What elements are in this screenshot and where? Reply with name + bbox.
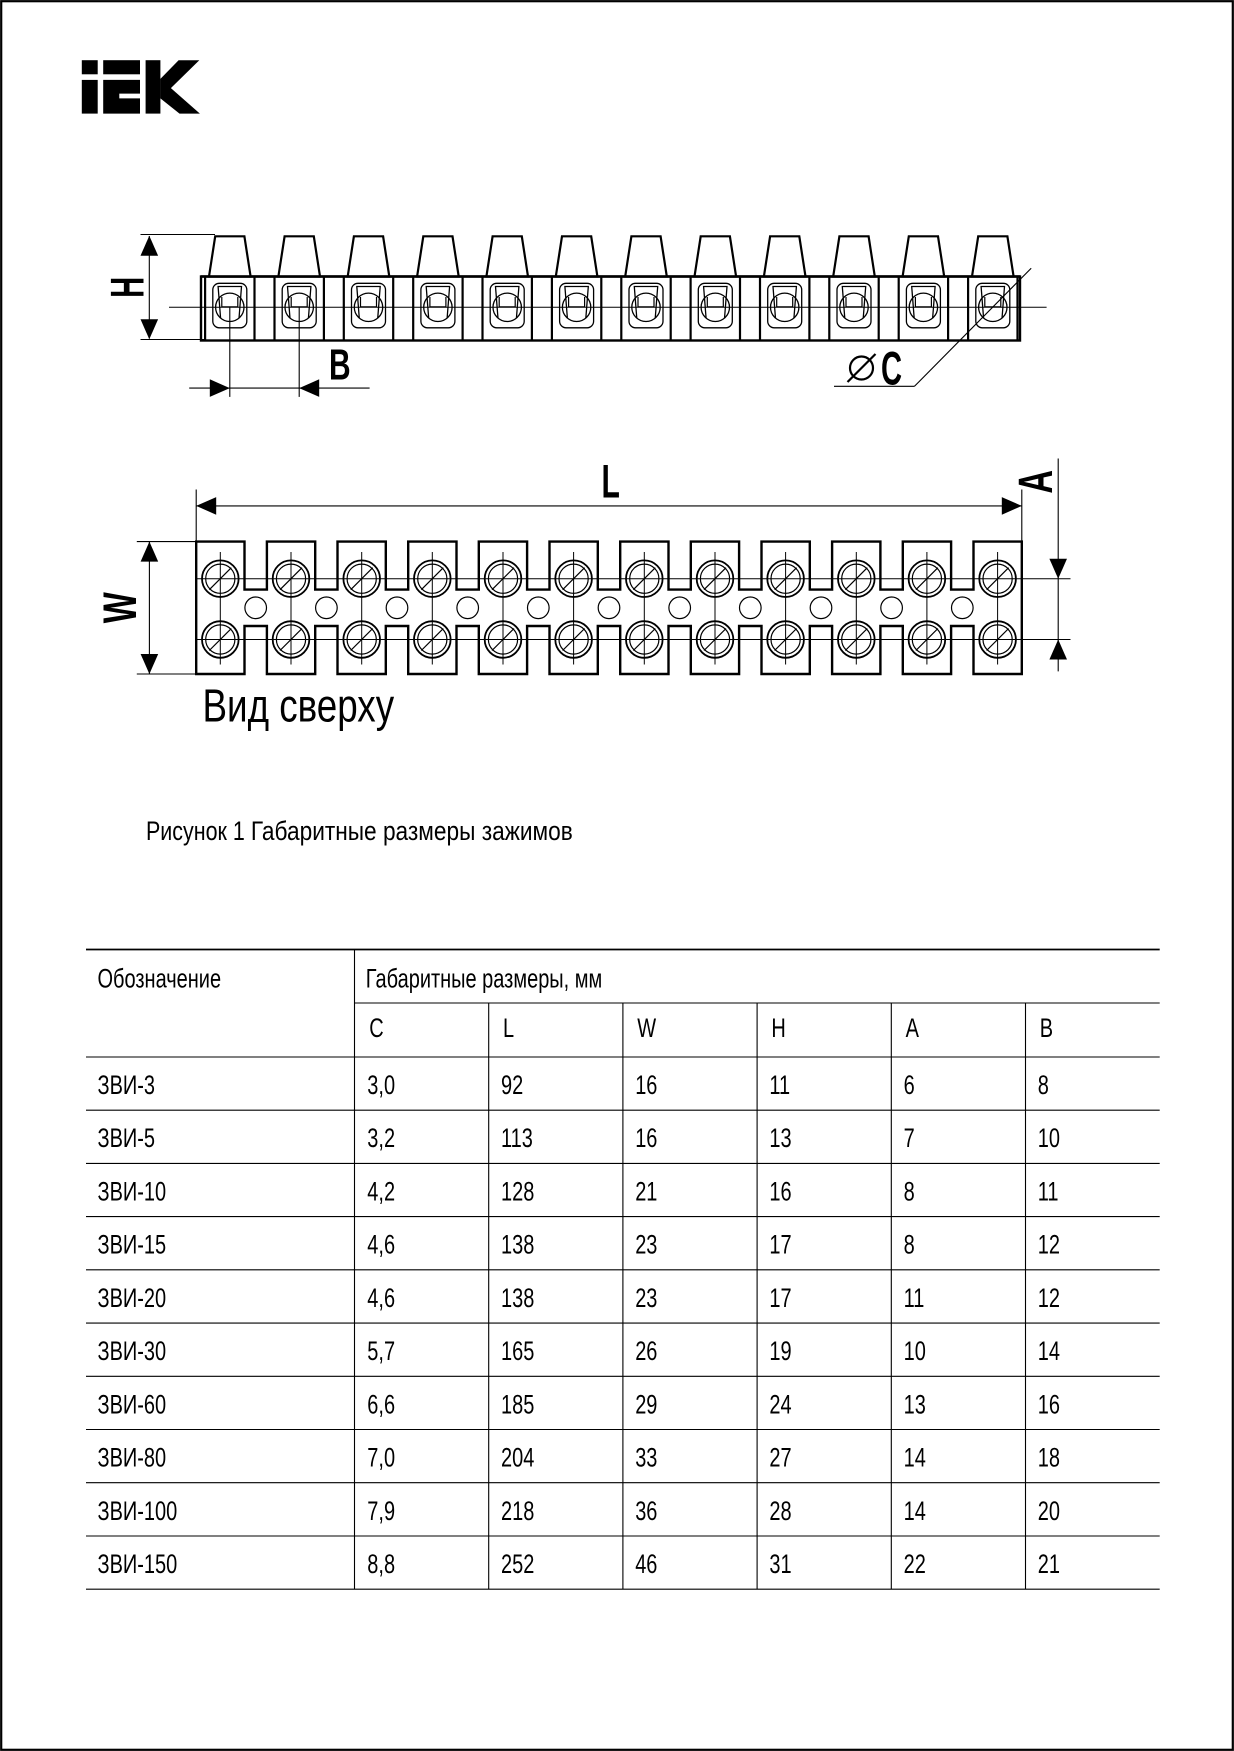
svg-text:252: 252 (501, 1549, 534, 1580)
svg-text:31: 31 (769, 1549, 791, 1580)
svg-text:4,6: 4,6 (367, 1283, 395, 1314)
svg-text:11: 11 (1038, 1177, 1059, 1208)
svg-text:3,2: 3,2 (367, 1123, 395, 1154)
svg-text:ЗВИ-80: ЗВИ-80 (98, 1443, 167, 1474)
svg-text:5,7: 5,7 (367, 1336, 395, 1367)
svg-text:Обозначение: Обозначение (98, 964, 222, 995)
svg-text:46: 46 (635, 1549, 657, 1580)
svg-text:ЗВИ-150: ЗВИ-150 (98, 1549, 178, 1580)
svg-text:17: 17 (769, 1230, 791, 1261)
svg-text:185: 185 (501, 1389, 534, 1420)
svg-text:218: 218 (501, 1496, 534, 1527)
svg-text:6: 6 (904, 1070, 915, 1101)
svg-text:29: 29 (635, 1389, 657, 1420)
svg-text:Габаритные размеры зажимов: Габаритные размеры зажимов (251, 816, 573, 846)
svg-text:14: 14 (904, 1496, 926, 1527)
svg-text:7,0: 7,0 (367, 1443, 395, 1474)
svg-text:204: 204 (501, 1443, 534, 1474)
svg-text:8,8: 8,8 (367, 1549, 395, 1580)
svg-text:13: 13 (904, 1389, 926, 1420)
svg-text:B: B (1040, 1013, 1053, 1044)
svg-text:16: 16 (635, 1070, 657, 1101)
svg-text:138: 138 (501, 1283, 534, 1314)
svg-text:8: 8 (904, 1230, 915, 1261)
svg-text:92: 92 (501, 1070, 523, 1101)
svg-text:A: A (1009, 470, 1063, 494)
svg-text:27: 27 (769, 1443, 791, 1474)
svg-text:3,0: 3,0 (367, 1070, 395, 1101)
svg-text:L: L (602, 456, 620, 508)
svg-text:20: 20 (1038, 1496, 1060, 1527)
svg-text:L: L (503, 1013, 514, 1044)
svg-text:16: 16 (1038, 1389, 1060, 1420)
svg-text:W: W (93, 592, 146, 624)
svg-text:22: 22 (904, 1549, 926, 1580)
svg-text:26: 26 (635, 1336, 657, 1367)
svg-text:ЗВИ-15: ЗВИ-15 (98, 1230, 167, 1261)
svg-text:14: 14 (1038, 1336, 1060, 1367)
svg-text:11: 11 (904, 1283, 925, 1314)
svg-text:12: 12 (1038, 1283, 1060, 1314)
svg-text:ЗВИ-20: ЗВИ-20 (98, 1283, 167, 1314)
svg-text:8: 8 (1038, 1070, 1049, 1101)
svg-text:4,6: 4,6 (367, 1230, 395, 1261)
svg-text:16: 16 (635, 1123, 657, 1154)
svg-text:23: 23 (635, 1230, 657, 1261)
svg-text:H: H (771, 1013, 785, 1044)
svg-text:B: B (329, 340, 351, 389)
svg-text:4,2: 4,2 (367, 1177, 395, 1208)
svg-text:ЗВИ-100: ЗВИ-100 (98, 1496, 178, 1527)
svg-text:Рисунок 1: Рисунок 1 (146, 817, 245, 847)
svg-text:33: 33 (635, 1443, 657, 1474)
svg-text:28: 28 (769, 1496, 791, 1527)
svg-text:6,6: 6,6 (367, 1389, 395, 1420)
svg-text:ЗВИ-30: ЗВИ-30 (98, 1336, 167, 1367)
svg-text:138: 138 (501, 1230, 534, 1261)
svg-text:165: 165 (501, 1336, 534, 1367)
svg-text:10: 10 (904, 1336, 926, 1367)
svg-text:14: 14 (904, 1443, 926, 1474)
svg-text:18: 18 (1038, 1443, 1060, 1474)
svg-text:21: 21 (1038, 1549, 1060, 1580)
svg-text:13: 13 (769, 1123, 791, 1154)
svg-text:128: 128 (501, 1177, 534, 1208)
svg-text:7: 7 (904, 1123, 915, 1154)
svg-text:17: 17 (769, 1283, 791, 1314)
svg-text:7,9: 7,9 (367, 1496, 395, 1527)
svg-text:C: C (881, 344, 902, 396)
svg-text:ЗВИ-5: ЗВИ-5 (98, 1123, 156, 1154)
svg-text:16: 16 (769, 1177, 791, 1208)
svg-text:Вид сверху: Вид сверху (203, 680, 395, 732)
svg-text:11: 11 (769, 1070, 790, 1101)
svg-text:19: 19 (769, 1336, 791, 1367)
svg-text:10: 10 (1038, 1123, 1060, 1154)
svg-text:12: 12 (1038, 1230, 1060, 1261)
svg-text:21: 21 (635, 1177, 657, 1208)
svg-text:24: 24 (769, 1389, 791, 1420)
svg-text:H: H (102, 277, 154, 298)
svg-text:ЗВИ-60: ЗВИ-60 (98, 1389, 167, 1420)
svg-text:ЗВИ-10: ЗВИ-10 (98, 1177, 167, 1208)
svg-text:113: 113 (501, 1123, 533, 1154)
svg-text:ЗВИ-3: ЗВИ-3 (98, 1070, 156, 1101)
svg-text:23: 23 (635, 1283, 657, 1314)
svg-text:Габаритные размеры, мм: Габаритные размеры, мм (366, 964, 602, 995)
svg-text:8: 8 (904, 1177, 915, 1208)
svg-text:36: 36 (635, 1496, 657, 1527)
svg-text:C: C (369, 1013, 383, 1044)
svg-text:W: W (637, 1013, 656, 1044)
svg-text:A: A (906, 1013, 919, 1044)
